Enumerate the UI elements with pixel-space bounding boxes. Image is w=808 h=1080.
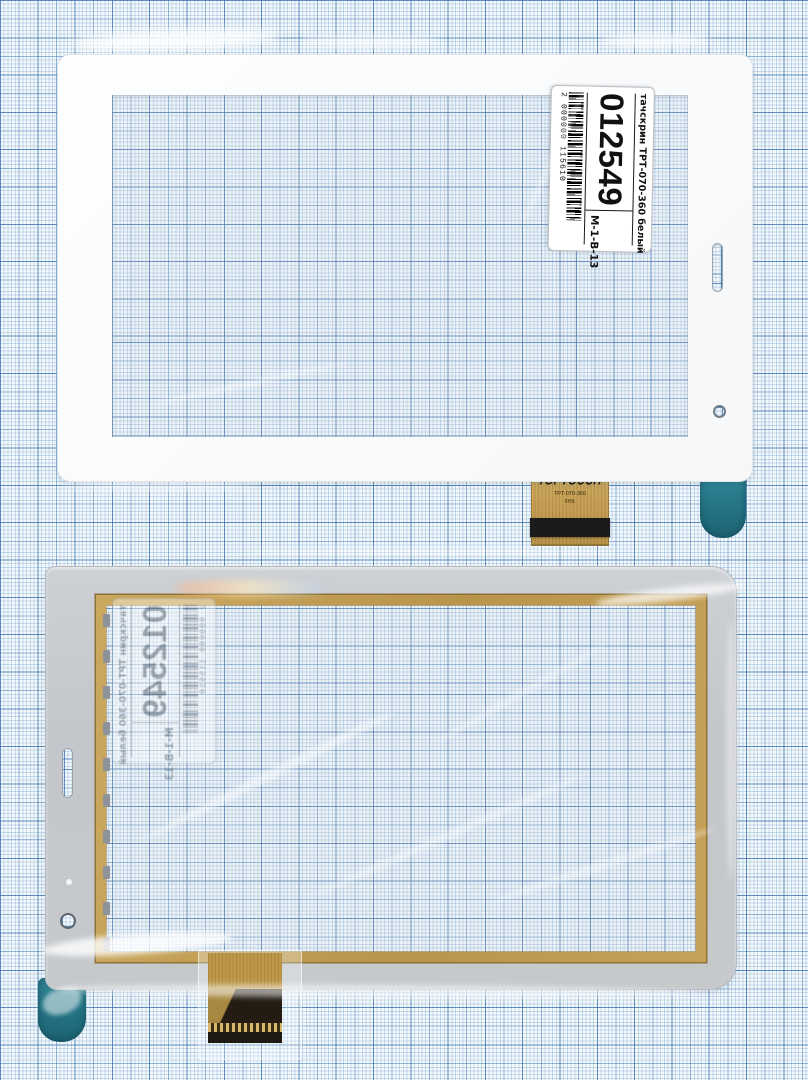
- alignment-notch: [103, 722, 110, 735]
- alignment-notch: [103, 794, 110, 807]
- contact-fingers: [208, 1023, 282, 1032]
- flex-part-number: TPT-070-360: [531, 491, 609, 497]
- flex-revision: FHX: [531, 499, 609, 505]
- alignment-notch: [103, 938, 110, 951]
- camera-hole-back: [60, 913, 76, 929]
- speaker-slot-back: [62, 748, 73, 798]
- barcode: [566, 92, 584, 220]
- alignment-notch: [103, 830, 110, 843]
- flex-stiffener: [530, 518, 610, 537]
- label-model: M-1-B-13: [584, 211, 600, 269]
- label-code: 012549: [585, 93, 634, 207]
- pull-tab-front: [700, 478, 746, 538]
- alignment-notch: [103, 614, 110, 627]
- alignment-notch: [103, 650, 110, 663]
- adhesive-dot: [66, 879, 72, 885]
- barcode-number: 2 000000 115610: [556, 92, 568, 244]
- mirrored-label: тачскрин ТРТ-070-360 белый 012549 M-1-B-…: [112, 598, 216, 764]
- alignment-notch: [103, 686, 110, 699]
- alignment-notch: [103, 902, 110, 915]
- photo-canvas: TOPTOUCH TPT-070-360 FHX тачскрин ТРТ-07…: [0, 0, 808, 1080]
- alignment-notch: [103, 866, 110, 879]
- flex-stiffener-back: [208, 989, 282, 1023]
- alignment-notch: [103, 758, 110, 771]
- speaker-slot: [712, 243, 723, 292]
- camera-hole: [713, 405, 726, 418]
- flex-cable-back: [208, 953, 282, 1043]
- product-label: тачскрин ТРТ-070-360 белый 012549 M-1-B-…: [551, 87, 655, 253]
- label-product-name: тачскрин ТРТ-070-360 белый: [632, 94, 650, 246]
